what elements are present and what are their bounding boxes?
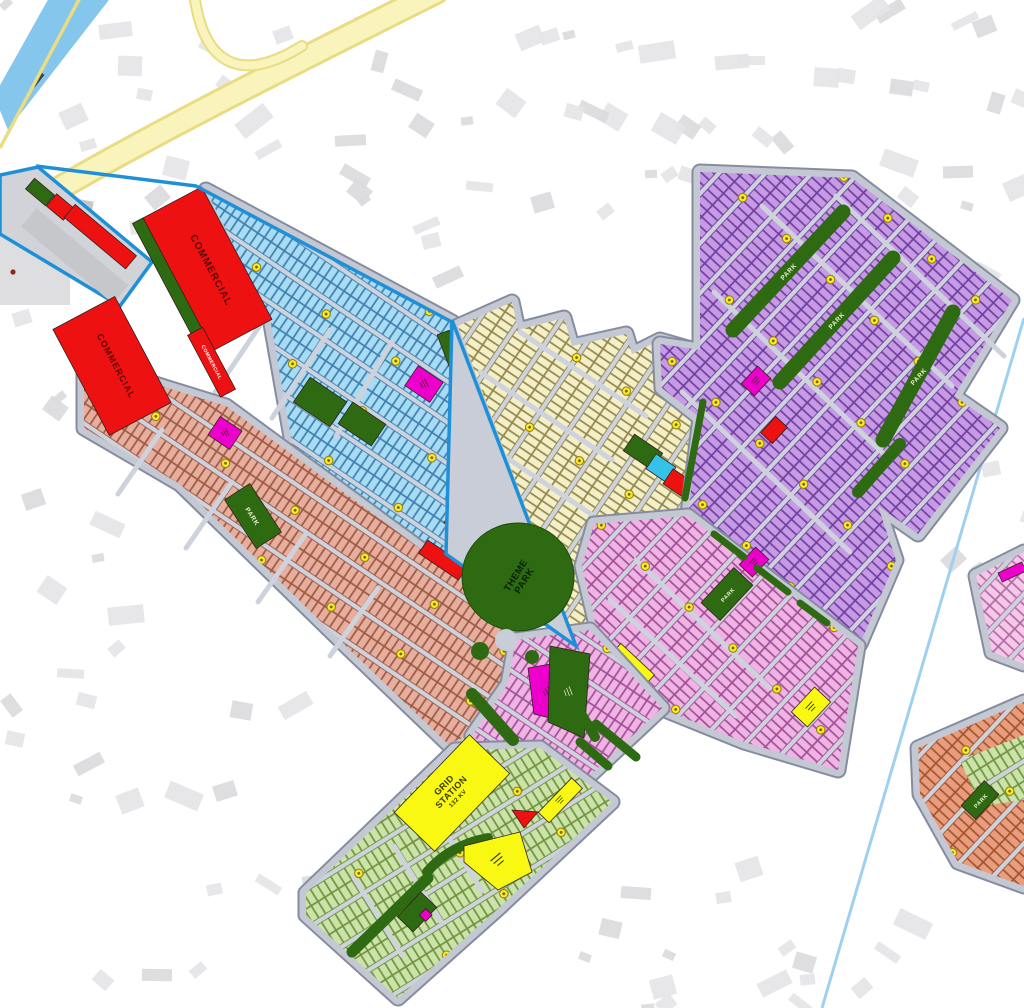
building-footprint <box>714 54 749 71</box>
building-footprint <box>621 886 652 900</box>
building-footprint <box>230 700 254 720</box>
building-footprint <box>645 170 658 179</box>
building-footprint <box>813 67 839 88</box>
map-root: PARK PARK PARK PARK <box>0 0 1024 1008</box>
building-footprint <box>57 668 84 678</box>
building-footprint <box>461 116 474 125</box>
building-footprint <box>889 78 914 96</box>
building-footprint <box>118 56 143 77</box>
building-footprint <box>335 134 367 147</box>
roundabout <box>495 629 517 651</box>
building-footprint <box>715 891 732 904</box>
park-circle <box>471 642 489 660</box>
building-footprint <box>943 165 973 178</box>
building-footprint <box>799 973 815 986</box>
park-circle <box>525 650 539 664</box>
poi-dot <box>10 269 15 274</box>
zone-sector-east-pink[interactable] <box>976 552 1024 664</box>
building-footprint <box>142 969 172 982</box>
building-footprint <box>107 604 145 626</box>
